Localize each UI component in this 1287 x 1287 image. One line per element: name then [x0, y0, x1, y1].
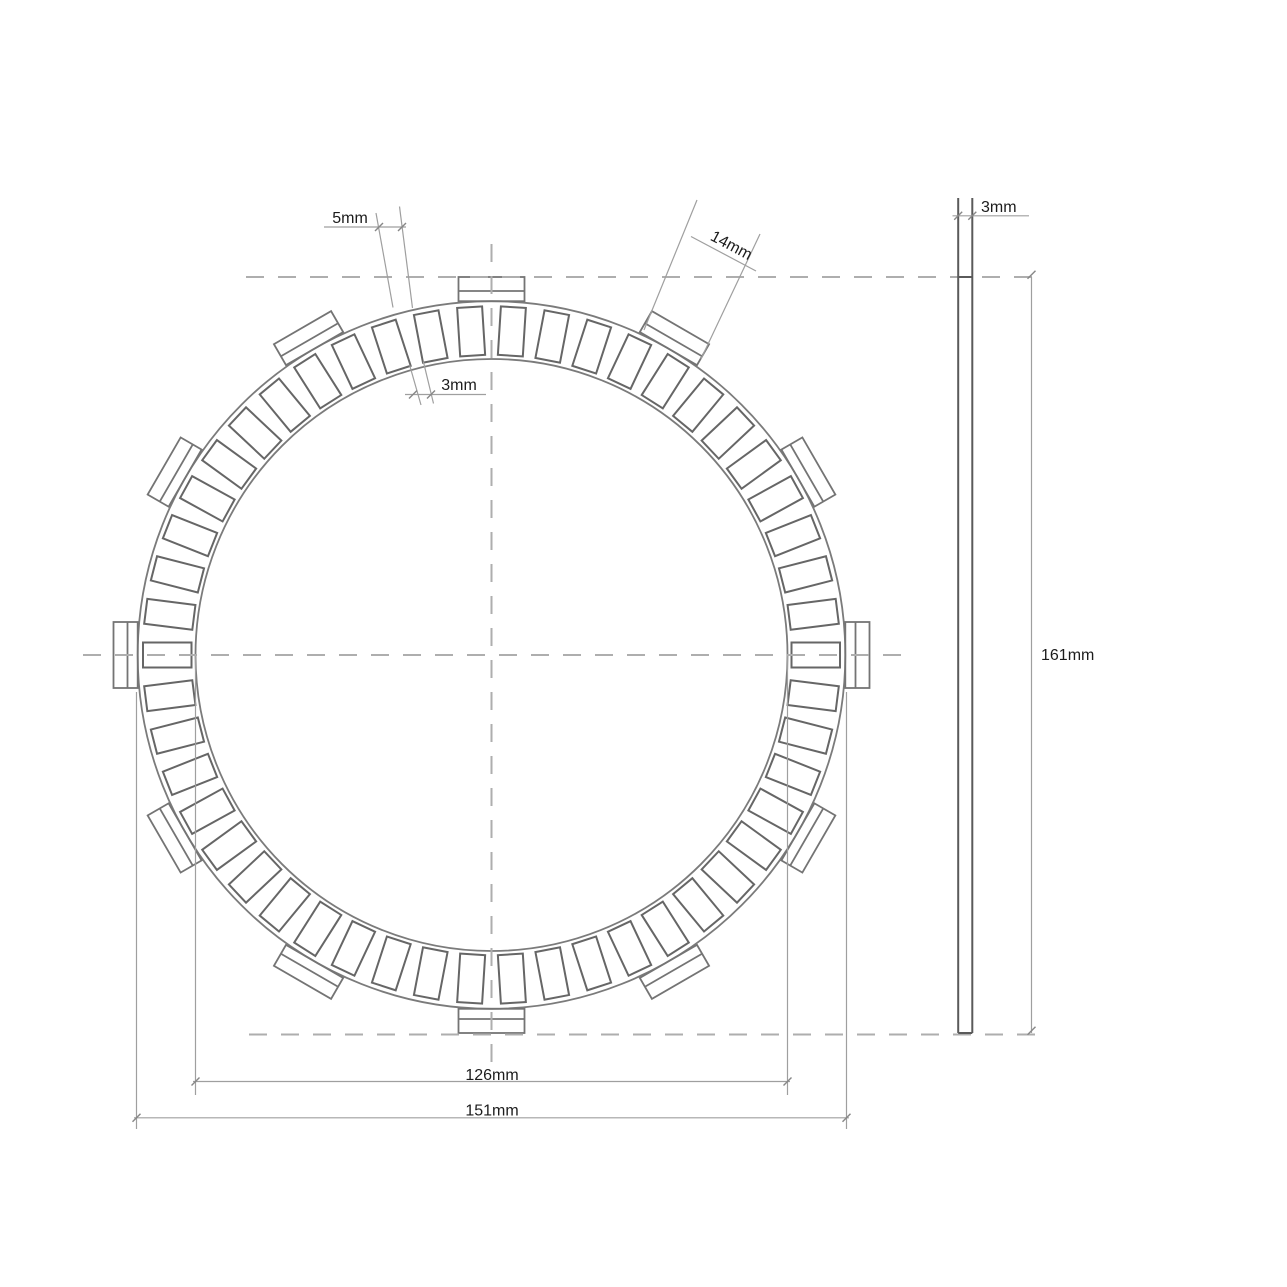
- svg-text:5mm: 5mm: [332, 210, 368, 227]
- svg-text:151mm: 151mm: [465, 1103, 518, 1120]
- svg-text:126mm: 126mm: [465, 1067, 518, 1084]
- svg-text:3mm: 3mm: [981, 199, 1017, 216]
- svg-text:3mm: 3mm: [441, 377, 477, 394]
- svg-text:161mm: 161mm: [1041, 647, 1094, 664]
